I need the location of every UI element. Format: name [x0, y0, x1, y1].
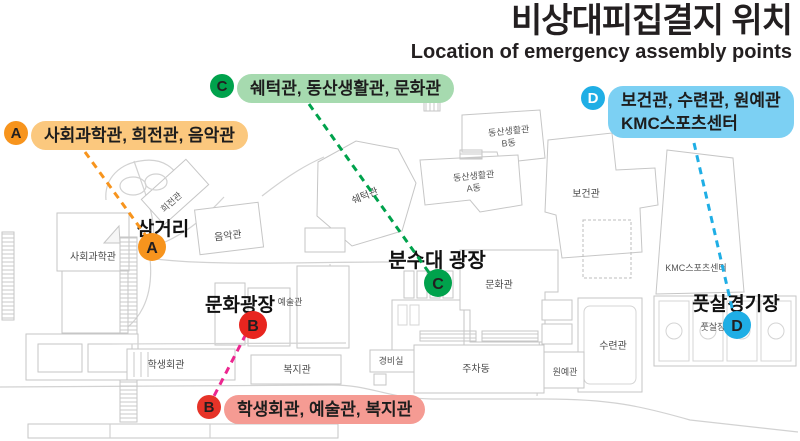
marker-d-letter: D: [731, 318, 743, 335]
legend-b-badge: B: [197, 395, 221, 419]
label-dongsan-a-2: A동: [466, 182, 481, 193]
legend-item-b: B 학생회관, 예술관, 복지관: [197, 395, 425, 424]
title-block: 비상대피집결지 위치 Location of emergency assembl…: [411, 1, 792, 63]
label-juchadong: 주차동: [462, 363, 490, 375]
legend-item-c: C 쉐턱관, 동산생활관, 문화관: [210, 74, 454, 103]
legend-a-label: 사회과학관, 희전관, 음악관: [31, 121, 248, 150]
page-subtitle: Location of emergency assembly points: [411, 41, 792, 63]
label-haksaenghoegwan: 학생회관: [148, 359, 185, 371]
legend-d-label-line2: KMC스포츠센터: [621, 112, 781, 135]
legend-item-d: D 보건관, 수련관, 원예관 KMC스포츠센터: [581, 86, 794, 138]
legend-item-a: A 사회과학관, 희전관, 음악관: [4, 121, 248, 150]
label-dongsan-b-2: B동: [501, 137, 516, 148]
marker-b-letter: B: [247, 318, 259, 335]
label-bogeongwan: 보건관: [572, 188, 600, 200]
label-munhwagwan: 문화관: [485, 279, 513, 291]
campus-map: 사회과학관 희전관 음악관 쉐턱관 동산생활관 B동 동산생활관 A동 보건관 …: [0, 0, 800, 441]
label-yesulgwan: 예술관: [278, 297, 303, 307]
label-bokjigwan: 복지관: [283, 364, 311, 376]
legend-c-badge: C: [210, 74, 234, 98]
legend-b-label: 학생회관, 예술관, 복지관: [224, 395, 425, 424]
label-kmc: KMC스포츠센터: [665, 263, 726, 273]
label-suryeongwan: 수련관: [599, 340, 627, 352]
emergency-assembly-map-page: 사회과학관 희전관 음악관 쉐턱관 동산생활관 B동 동산생활관 A동 보건관 …: [0, 0, 800, 441]
legend-d-label: 보건관, 수련관, 원예관 KMC스포츠센터: [608, 86, 794, 138]
marker-a-letter: A: [146, 240, 158, 257]
marker-c-letter: C: [432, 276, 444, 293]
label-sahoegwahakgwan: 사회과학관: [70, 251, 116, 263]
label-munhwa-plaza: 문화광장: [205, 294, 275, 316]
legend-d-badge: D: [581, 86, 605, 110]
label-bunsudae-plaza: 분수대 광장: [388, 249, 486, 272]
label-gyeongbisil: 경비실: [379, 355, 404, 366]
legend-a-badge: A: [4, 121, 28, 145]
label-wonyegwan: 원예관: [553, 367, 578, 377]
page-title: 비상대피집결지 위치: [411, 1, 792, 41]
label-futsaljang: 풋살장: [701, 322, 726, 332]
legend-d-label-line1: 보건관, 수련관, 원예관: [621, 89, 781, 112]
legend-c-label: 쉐턱관, 동산생활관, 문화관: [237, 74, 454, 103]
